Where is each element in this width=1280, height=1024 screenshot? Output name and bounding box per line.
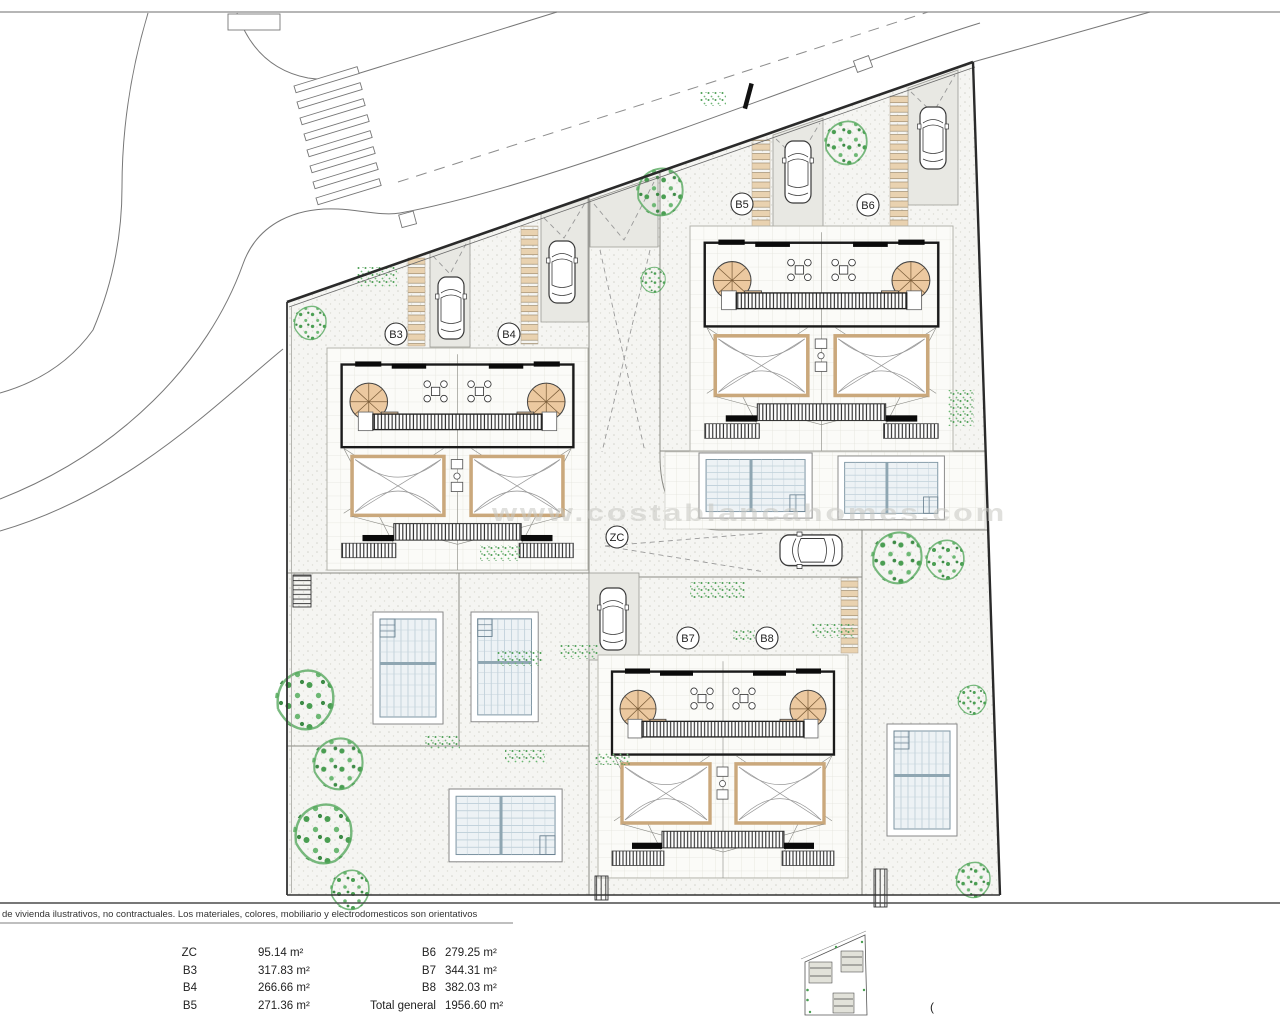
tree [330, 870, 370, 910]
legend-label: B6 [422, 947, 436, 959]
car-b6 [918, 107, 949, 169]
car-b4 [547, 241, 578, 303]
unit-label-zc: ZC [606, 526, 628, 548]
car-zc-drive [780, 532, 842, 569]
legend-value: 271.36 m² [258, 1000, 310, 1012]
footer: de vivienda ilustrativos, no contractual… [0, 903, 1280, 1015]
tree [640, 267, 666, 293]
site-plan-page: ZC B3 B4 B5 B6 B7 B8 www.costablancahome… [0, 0, 1280, 1024]
legend-label: ZC [182, 947, 197, 959]
disclaimer-text: de vivienda ilustrativos, no contractual… [2, 909, 477, 920]
car-b3 [436, 277, 467, 339]
paver-strip-b5 [752, 140, 770, 229]
legend-label: B3 [183, 965, 197, 977]
legend-value: 344.31 m² [445, 965, 497, 977]
tree [957, 685, 987, 715]
unit-label-b8-text: B8 [760, 633, 773, 645]
site-plan-drawing: ZC B3 B4 B5 B6 B7 B8 www.costablancahome… [0, 0, 1280, 1024]
cropped-paren-text: ( [930, 1000, 934, 1014]
pool-b7 [449, 789, 562, 862]
paver-strip-b8 [841, 578, 858, 653]
villa-block-b3-b4 [327, 348, 588, 570]
watermark: www.costablancahomes.com [491, 500, 1007, 527]
tree [293, 306, 327, 340]
pool-b3 [373, 612, 443, 724]
unit-label-b7: B7 [677, 627, 699, 649]
legend-label: B5 [183, 1000, 197, 1012]
garden-stair-left [293, 575, 311, 607]
legend-label: B8 [422, 982, 436, 994]
legend-value: 382.03 m² [445, 982, 497, 994]
site-parcel: ZC B3 B4 B5 B6 B7 B8 www.costablancahome… [275, 12, 1150, 910]
legend-value: 317.83 m² [258, 965, 310, 977]
paver-strip-b6 [890, 96, 908, 226]
curb-box [399, 211, 417, 227]
car-b5 [783, 141, 814, 203]
unit-label-b3: B3 [385, 323, 407, 345]
tree [636, 168, 684, 216]
unit-label-b5: B5 [731, 193, 753, 215]
tree [824, 121, 868, 165]
legend-value: 1956.60 m² [445, 1000, 503, 1012]
tree [312, 738, 364, 790]
legend-label: Total general [370, 1000, 436, 1012]
pool-b4 [471, 612, 538, 722]
tree [925, 540, 965, 580]
unit-label-b3-text: B3 [389, 329, 402, 341]
unit-label-b4-text: B4 [502, 329, 515, 341]
unit-label-b8: B8 [756, 627, 778, 649]
mini-plan-thumbnail [801, 931, 867, 1015]
unit-label-b7-text: B7 [681, 633, 694, 645]
villa-block-b5-b6 [690, 226, 953, 451]
paver-strip-b4 [521, 226, 538, 344]
area-legend: ZC 95.14 m² B3 317.83 m² B4 266.66 m² B5… [182, 947, 504, 1012]
tree [293, 804, 353, 864]
crosswalk [294, 67, 381, 205]
legend-label: B4 [183, 982, 198, 994]
road-utility-box [228, 14, 280, 30]
paver-strip-b3 [408, 258, 425, 346]
stair-bottom-right [874, 869, 887, 907]
villa-block-b7-b8 [598, 655, 848, 878]
legend-value: 95.14 m² [258, 947, 304, 959]
legend-value: 279.25 m² [445, 947, 497, 959]
unit-label-b5-text: B5 [735, 199, 748, 211]
unit-label-b4: B4 [498, 323, 520, 345]
tree [275, 670, 335, 730]
tree [871, 532, 923, 584]
legend-value: 266.66 m² [258, 982, 310, 994]
legend-label: B7 [422, 965, 436, 977]
unit-label-zc-text: ZC [610, 532, 625, 544]
car-b7 [598, 588, 629, 650]
stair-bottom-left [595, 876, 608, 900]
pool-b8 [887, 724, 957, 836]
curb-box-2 [853, 56, 872, 73]
tree [955, 862, 991, 898]
unit-label-b6: B6 [857, 194, 879, 216]
unit-label-b6-text: B6 [861, 200, 874, 212]
